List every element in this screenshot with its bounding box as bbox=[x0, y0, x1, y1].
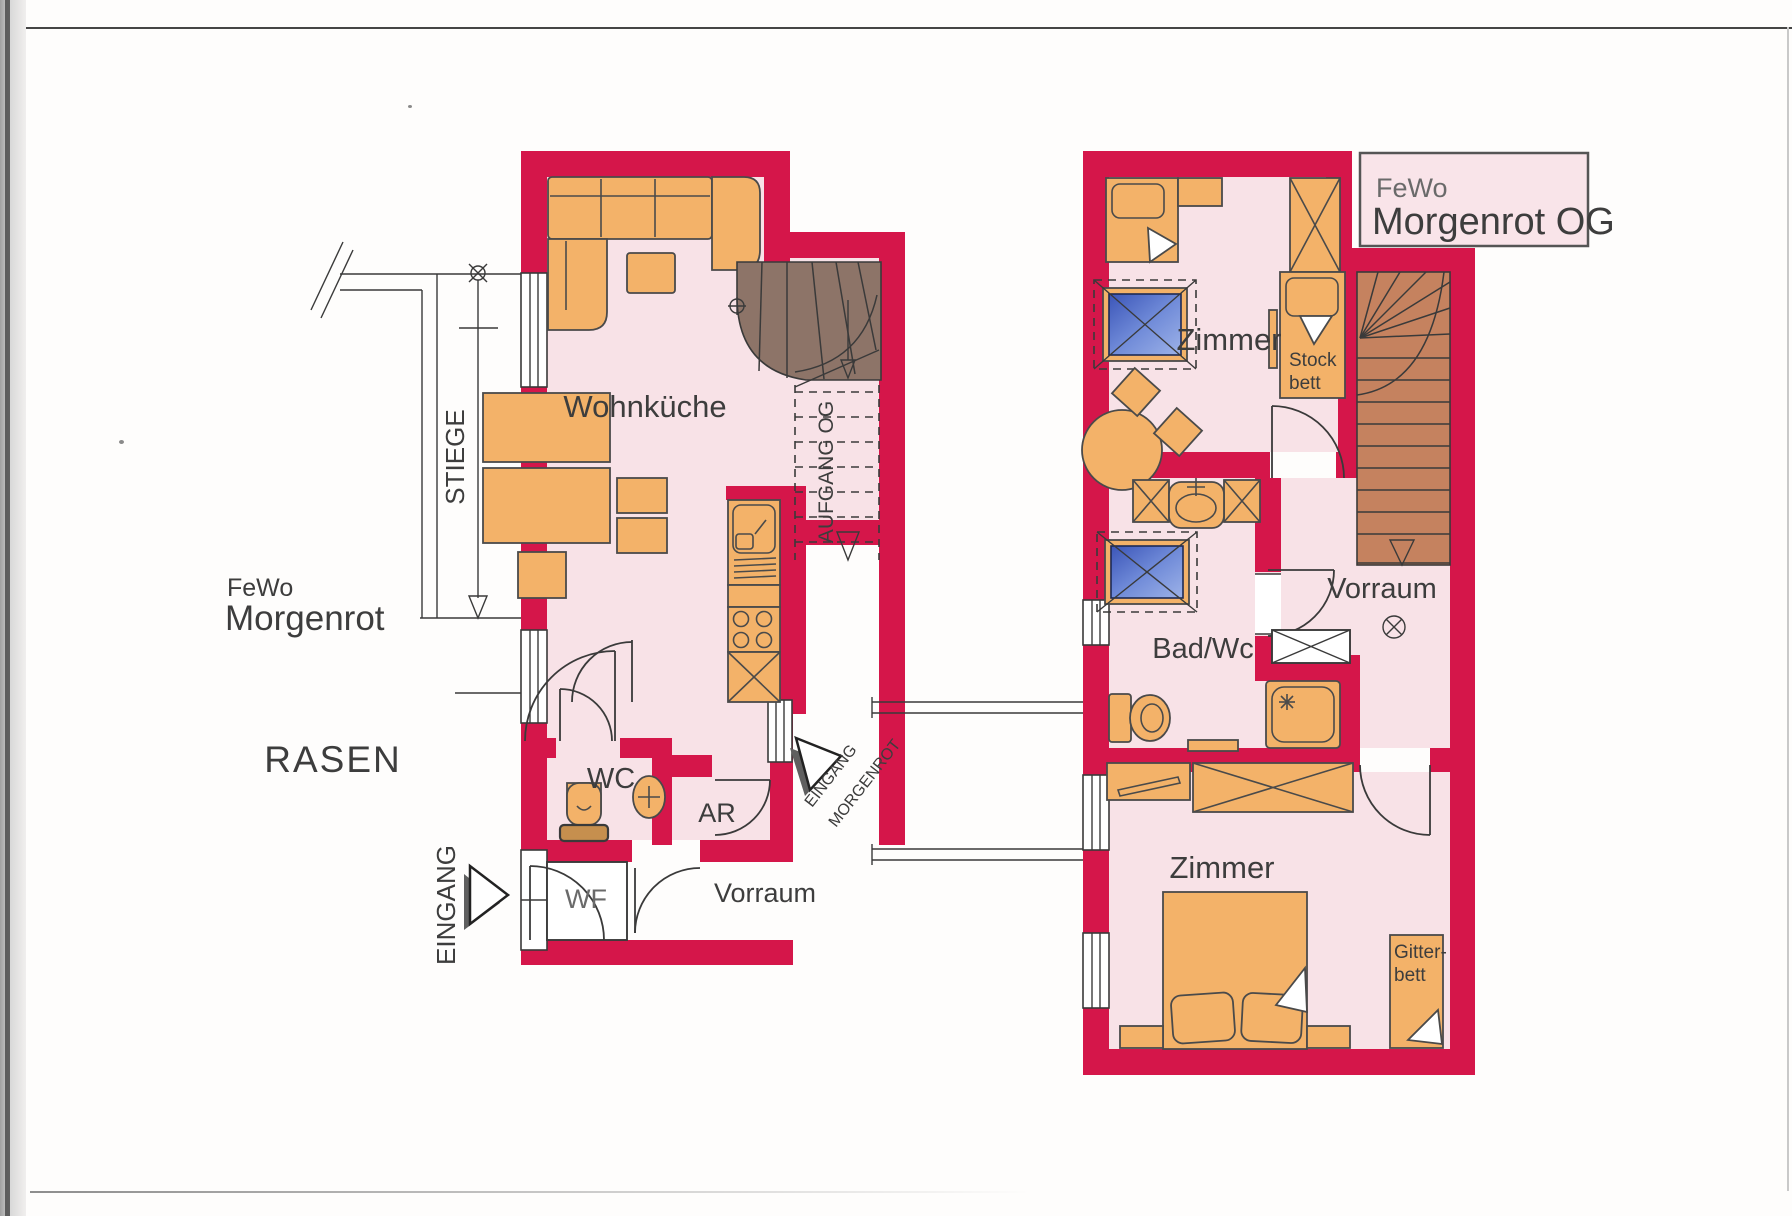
entrance-arrow bbox=[464, 866, 508, 930]
door-threshold bbox=[1255, 574, 1281, 634]
label-vorraum-ground: Vorraum bbox=[714, 878, 816, 908]
upper-floor-plan: FeWo Morgenrot OG Zimmer Stock bett Vorr… bbox=[872, 151, 1615, 1075]
label-rasen: RASEN bbox=[264, 739, 401, 780]
skylight-bathroom bbox=[1097, 532, 1197, 612]
label-wf: WF bbox=[565, 884, 607, 914]
label-zimmer-top: Zimmer bbox=[1176, 322, 1281, 357]
label-morgenrot-ground: Morgenrot bbox=[225, 599, 385, 638]
label-eingang: EINGANG bbox=[431, 845, 461, 965]
bed-top-room bbox=[1106, 178, 1178, 262]
nightstand-right bbox=[1307, 1026, 1350, 1048]
scan-right-border bbox=[1787, 27, 1789, 1191]
ottoman bbox=[627, 253, 675, 293]
label-wc: WC bbox=[587, 763, 635, 795]
bathroom-toilet bbox=[1109, 694, 1170, 742]
shelf-top-room bbox=[1178, 178, 1222, 206]
floorplan-drawing: FeWo Morgenrot RASEN EINGANG STIEGE Wohn… bbox=[0, 0, 1792, 1216]
label-aufgang-og: AUFGANG OG bbox=[815, 401, 838, 543]
floorplan-scan-page: FeWo Morgenrot RASEN EINGANG STIEGE Wohn… bbox=[0, 0, 1792, 1216]
label-stockbett-2: bett bbox=[1289, 373, 1321, 394]
shelf-bottom-room bbox=[1107, 763, 1190, 800]
upper-floor-windows bbox=[872, 600, 1109, 1008]
wc-sink bbox=[633, 776, 665, 818]
title-box: FeWo Morgenrot OG bbox=[1360, 153, 1615, 246]
shower bbox=[1266, 681, 1340, 748]
title-morgenrot-og: Morgenrot OG bbox=[1372, 201, 1615, 243]
hall-bench bbox=[1272, 630, 1350, 663]
label-bad-wc: Bad/Wc bbox=[1152, 633, 1254, 665]
dust-speck bbox=[408, 105, 412, 108]
label-zimmer-bottom: Zimmer bbox=[1169, 850, 1274, 885]
scan-edge-strip bbox=[0, 0, 26, 1216]
interior-stairs-upper bbox=[1357, 272, 1450, 565]
title-fewo: FeWo bbox=[1376, 173, 1448, 203]
dust-speck bbox=[119, 440, 124, 444]
bath-mat bbox=[1188, 740, 1238, 751]
label-gitterbett-2: bett bbox=[1394, 965, 1426, 986]
scan-bottom-border bbox=[30, 1191, 1030, 1193]
label-vorraum-upper: Vorraum bbox=[1327, 573, 1437, 605]
ground-floor-plan: FeWo Morgenrot RASEN EINGANG STIEGE Wohn… bbox=[225, 151, 905, 965]
label-gitterbett-1: Gitter- bbox=[1394, 942, 1447, 963]
wardrobe-top-room bbox=[1290, 178, 1340, 272]
label-stiege: STIEGE bbox=[440, 409, 470, 504]
label-fewo-ground: FeWo bbox=[227, 574, 293, 602]
scan-top-border bbox=[26, 27, 1792, 29]
double-bed bbox=[1163, 892, 1307, 1049]
kitchen-unit bbox=[728, 500, 780, 702]
label-ar: AR bbox=[698, 798, 736, 828]
nightstand-left bbox=[1120, 1026, 1163, 1048]
wardrobe-bottom-room bbox=[1193, 763, 1353, 812]
scan-edge-line bbox=[5, 0, 10, 1216]
washbasin-unit bbox=[1133, 478, 1260, 528]
label-stockbett-1: Stock bbox=[1289, 350, 1337, 371]
label-wohnkueche: Wohnküche bbox=[563, 389, 726, 424]
